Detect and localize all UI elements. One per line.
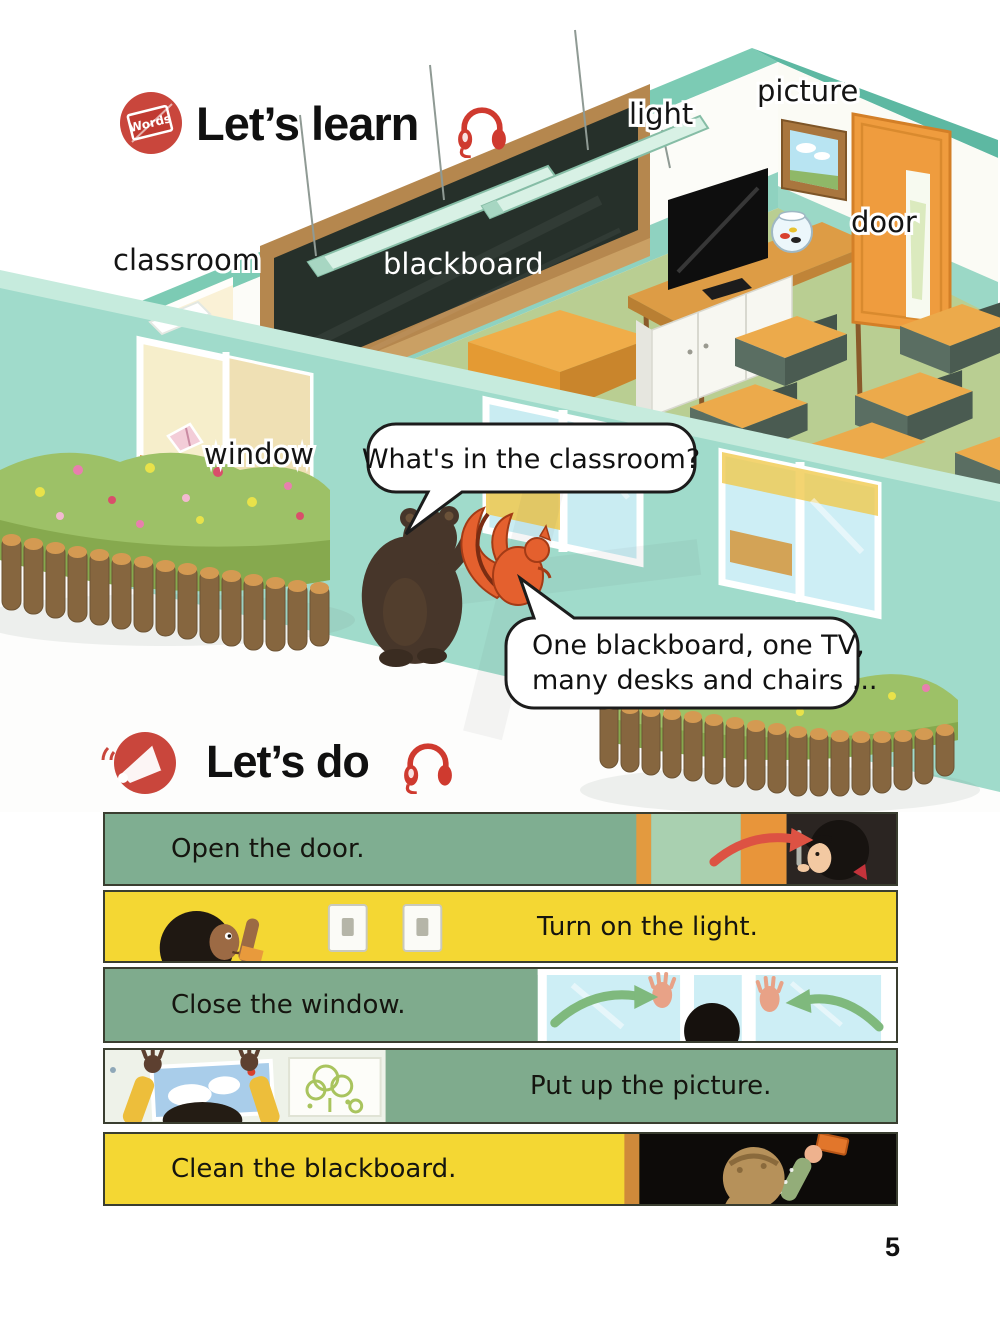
action-label-open-door: Open the door. [171,834,365,864]
words-badge-icon: Words [118,90,184,156]
headphones-icon [452,98,512,158]
lets-do-strip-put-up-picture: Put up the picture. [103,1048,898,1124]
bear-question-text: What's in the classroom? [362,444,700,475]
textbook-page: What's in the classroom? One blackboard,… [0,0,1000,1336]
action-label-clean-blackboard: Clean the blackboard. [171,1154,456,1184]
action-label-close-window: Close the window. [171,990,406,1020]
lets-do-title: Let’s do [206,736,369,788]
label-blackboard: blackboard [383,247,544,281]
label-light: light [629,97,693,131]
turn-on-light-illustration [105,892,896,961]
label-door: door [851,205,917,239]
flower-bed-left [0,453,355,651]
action-label-put-up-picture: Put up the picture. [530,1071,771,1101]
megaphone-badge-icon [98,728,178,798]
label-picture: picture [757,74,858,108]
lets-do-strip-clean-blackboard: Clean the blackboard. [103,1132,898,1206]
lets-learn-title: Let’s learn [196,96,418,151]
action-label-turn-on-light: Turn on the light. [537,912,758,942]
label-classroom: classroom [113,243,260,277]
headphones-icon [398,734,458,794]
label-window: window [204,437,314,471]
lets-do-strip-open-door: Open the door. [103,812,898,886]
lets-do-strip-turn-on-light: Turn on the light. [103,890,898,963]
page-number: 5 [885,1232,900,1263]
squirrel-answer-line1: One blackboard, one TV, [532,630,865,661]
fishbowl [772,212,812,253]
put-up-picture-illustration [105,1050,896,1122]
lets-do-strip-close-window: Close the window. [103,967,898,1043]
squirrel-answer-line2: many desks and chairs ... [532,665,878,696]
wall-picture [782,120,846,200]
